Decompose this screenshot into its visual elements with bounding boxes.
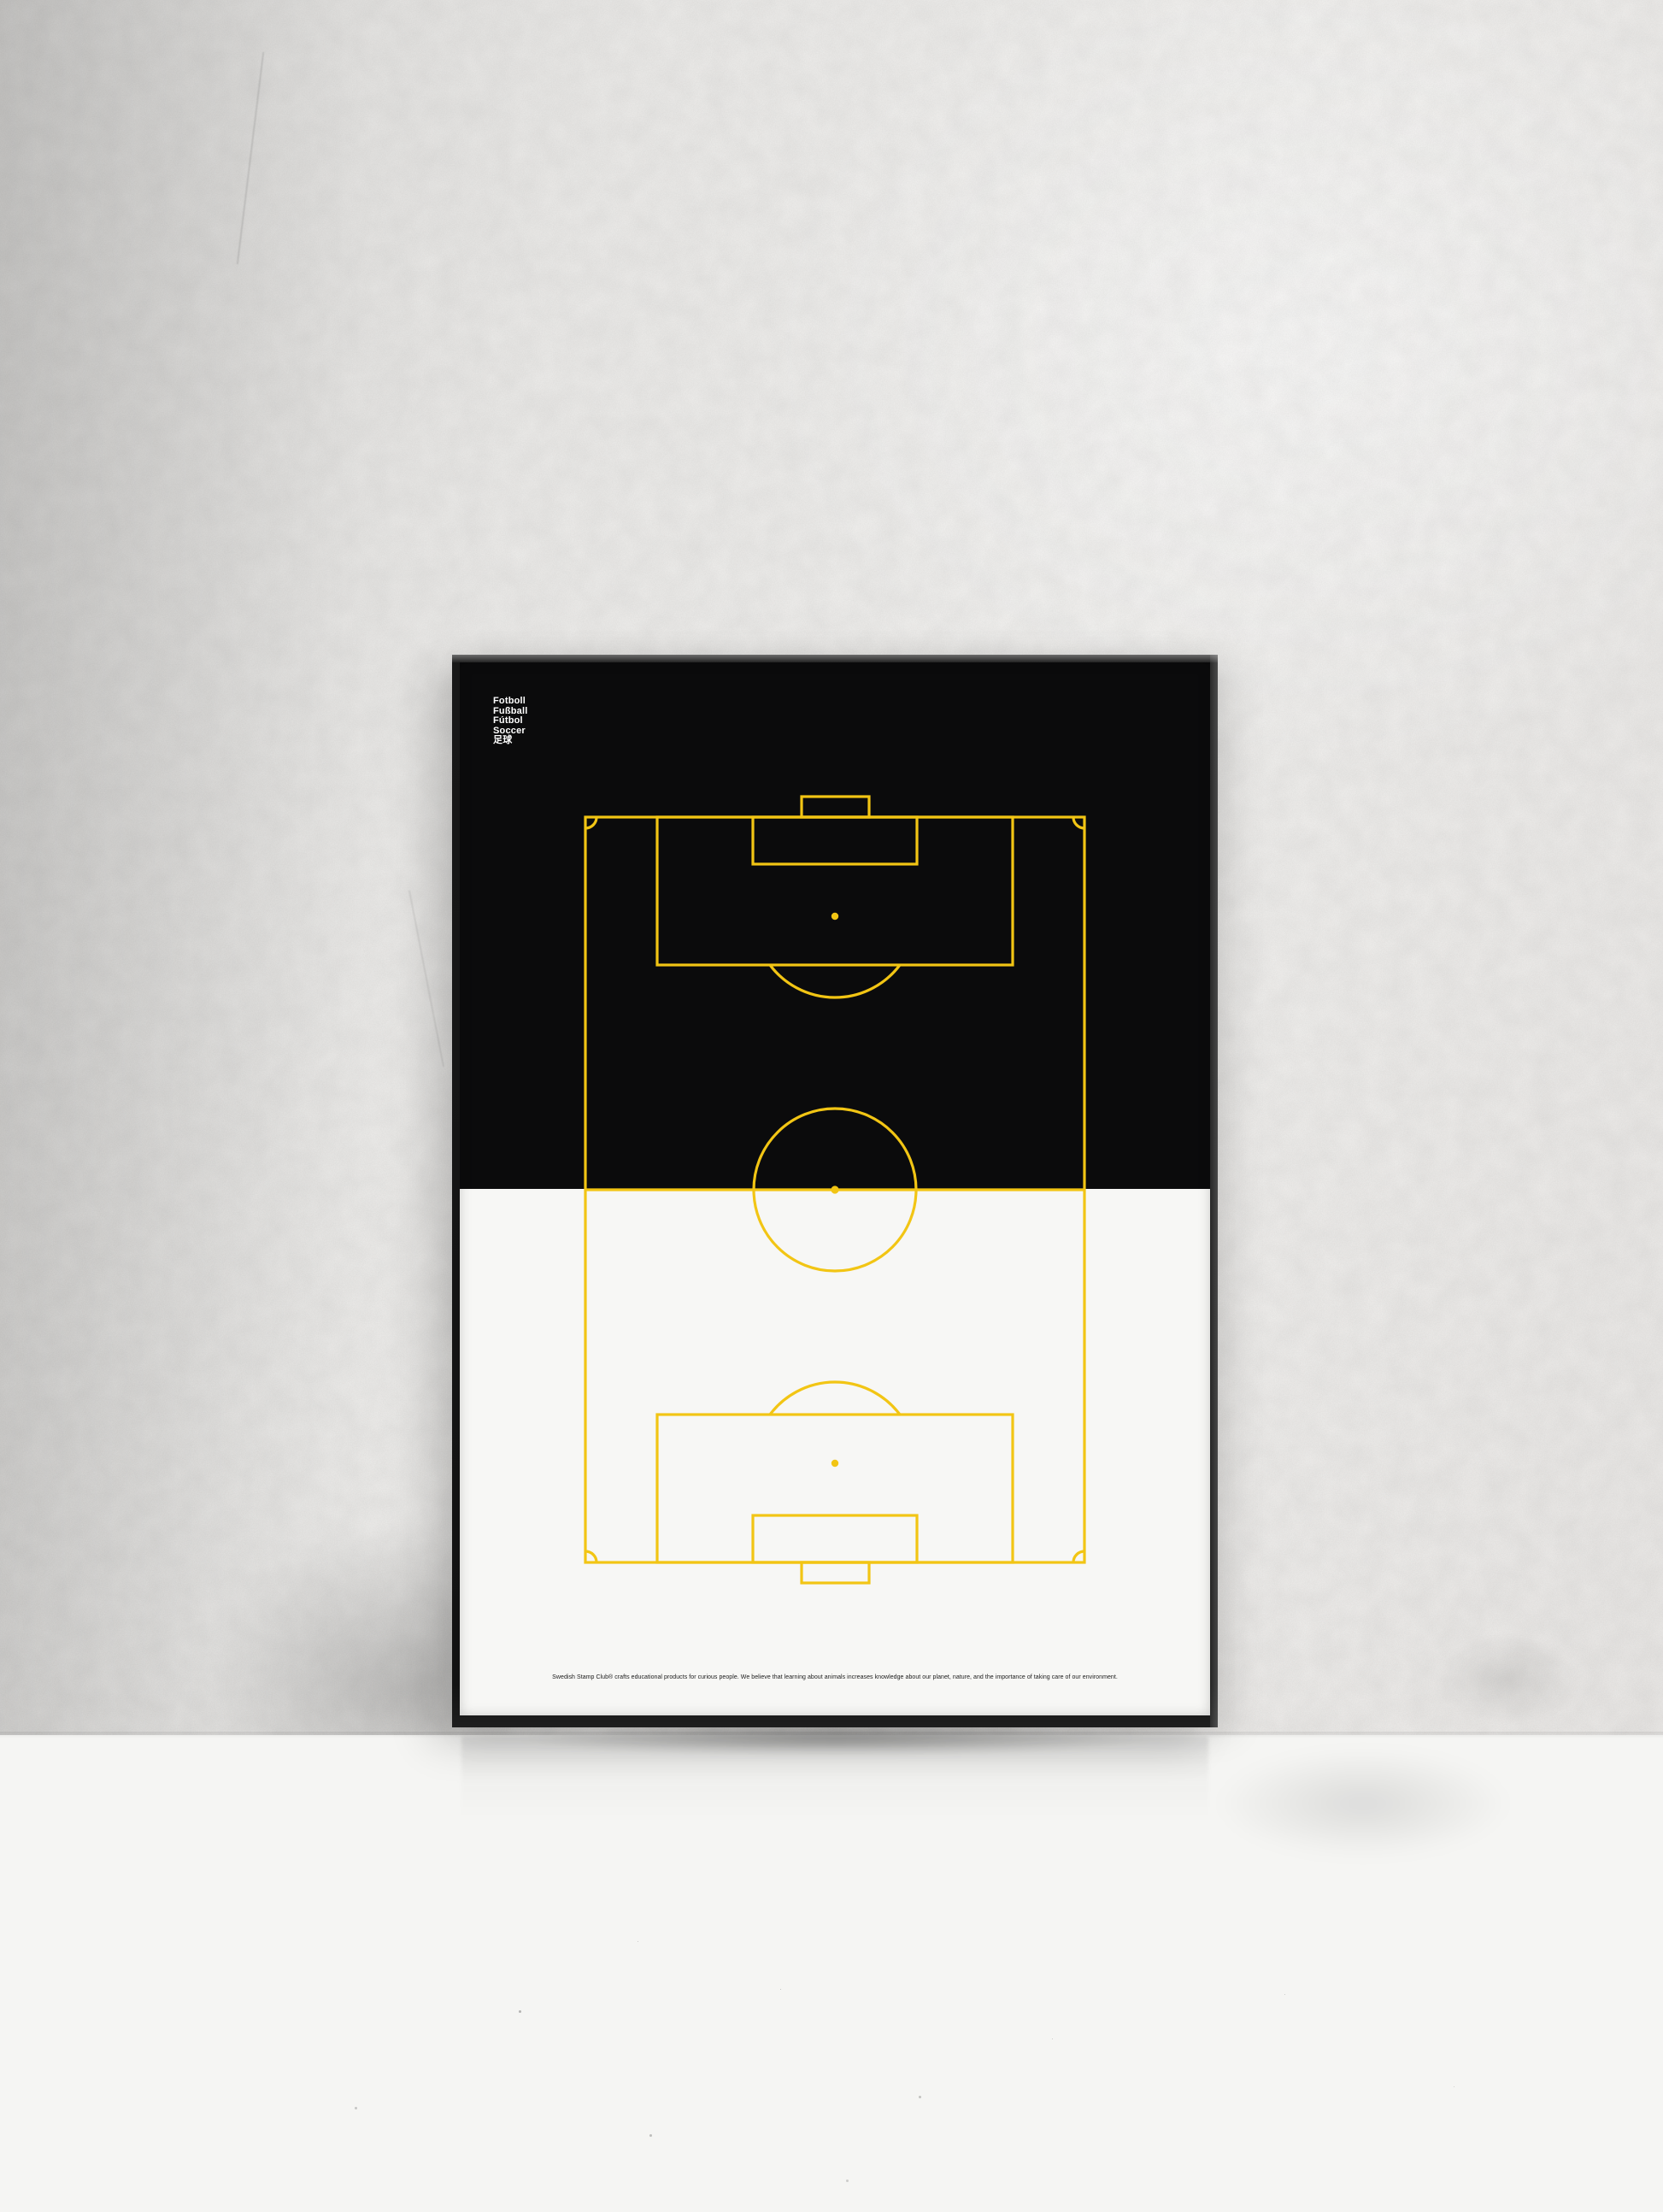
floor-side-shadow <box>1179 1735 1547 1872</box>
pitch-spots <box>831 913 838 1467</box>
poster-caption: Swedish Stamp Club® crafts educational p… <box>460 1674 1210 1681</box>
scene: Fotboll Fußball Fútbol Soccer 足球 Swedish… <box>0 0 1663 2212</box>
poster-title-block: Fotboll Fußball Fútbol Soccer 足球 <box>493 697 528 746</box>
football-pitch-diagram <box>460 662 1210 1715</box>
football-poster: Fotboll Fußball Fútbol Soccer 足球 Swedish… <box>460 662 1210 1715</box>
corner-arc-top-left <box>585 817 596 828</box>
title-line-swedish: Fotboll <box>493 697 528 707</box>
goal-top <box>802 797 869 817</box>
center-spot <box>831 1185 838 1193</box>
goal-area-bottom <box>753 1515 917 1562</box>
penalty-spot-top <box>831 913 838 920</box>
goal-area-top <box>753 817 917 864</box>
title-line-chinese: 足球 <box>493 736 528 746</box>
corner-arc-bottom-right <box>1073 1551 1084 1562</box>
floor-specks <box>519 2010 521 2013</box>
plaster-patch <box>1419 1624 1598 1735</box>
penalty-arc-top <box>770 965 900 997</box>
corner-arc-bottom-left <box>585 1551 596 1562</box>
poster-frame: Fotboll Fußball Fútbol Soccer 足球 Swedish… <box>452 655 1218 1727</box>
corner-arc-top-right <box>1073 817 1084 828</box>
penalty-area-bottom <box>657 1415 1013 1562</box>
penalty-arc-bottom <box>770 1382 900 1415</box>
goal-bottom <box>802 1562 869 1583</box>
penalty-area-top <box>657 817 1013 965</box>
poster-floor-reflection <box>461 1737 1208 1818</box>
penalty-spot-bottom <box>831 1460 838 1467</box>
